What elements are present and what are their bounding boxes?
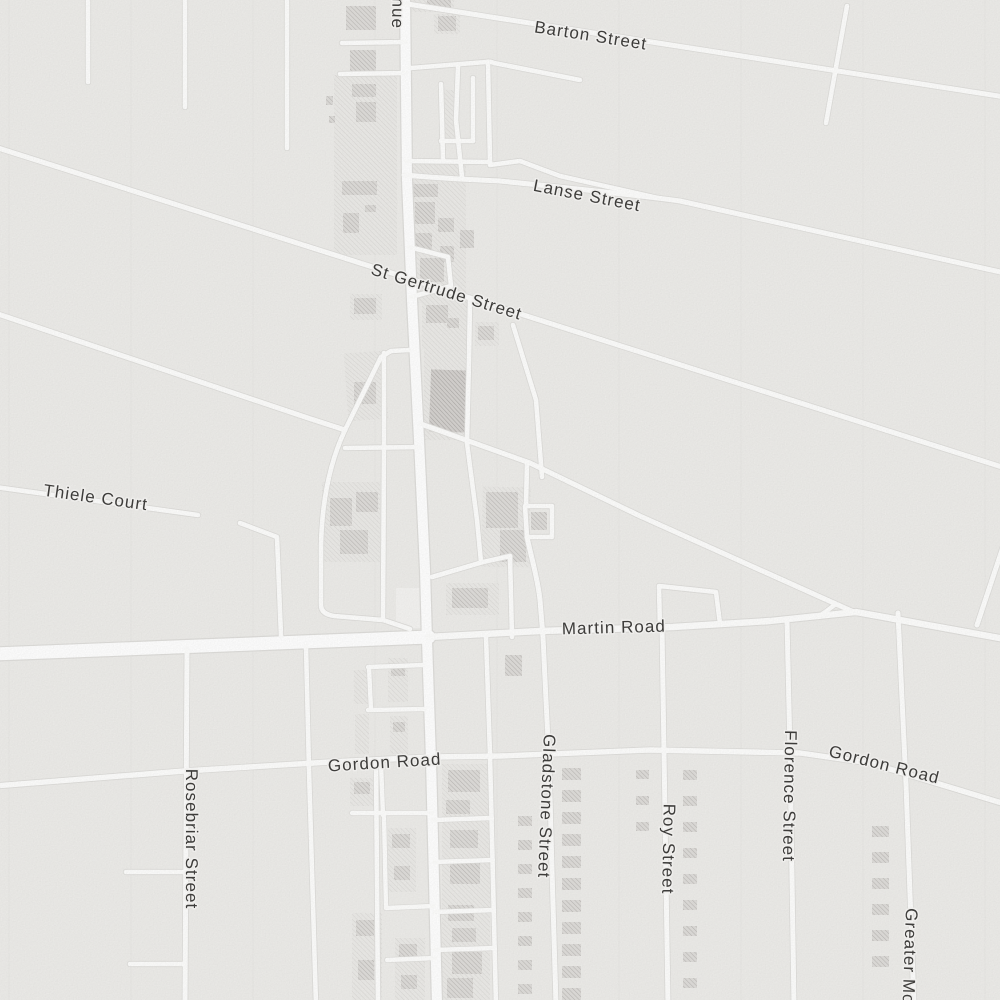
svg-text:Rosebriar Street: Rosebriar Street: [182, 769, 201, 910]
svg-text:Martin Road: Martin Road: [562, 617, 667, 639]
svg-text:Florence Street: Florence Street: [779, 730, 800, 862]
svg-text:Roy Street: Roy Street: [658, 804, 679, 895]
svg-text:Avenue: Avenue: [388, 0, 408, 29]
